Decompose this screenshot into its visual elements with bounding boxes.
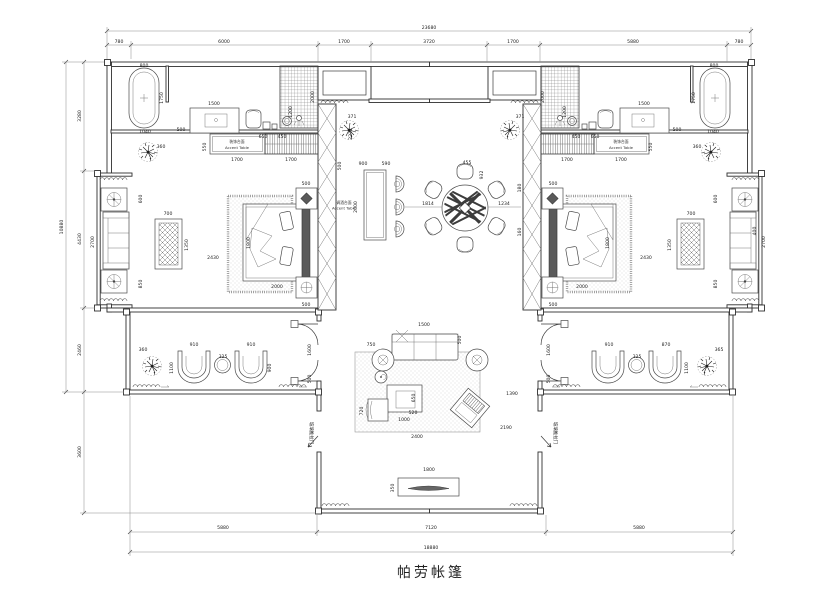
dim-label: 371 [348, 114, 357, 120]
dim-label: 2700 [90, 236, 96, 248]
bed [243, 204, 308, 281]
dim-label: 2000 [540, 91, 546, 103]
dim-label: 932 [479, 171, 485, 180]
side-wing [100, 178, 129, 301]
sofa [392, 334, 458, 360]
dim-label: 1800 [605, 237, 611, 249]
dim-label: 1500 [418, 322, 430, 328]
dim-label: 2700 [761, 236, 767, 248]
dim-label: 1750 [691, 92, 697, 104]
dim-label: 500 [302, 181, 311, 187]
dim-label: 1600 [307, 344, 313, 356]
dim-label: 18880 [424, 545, 439, 551]
dim-label: 360 [139, 347, 148, 353]
bar-stool [394, 176, 404, 192]
dim-label: 590 [382, 161, 391, 167]
dim-label: 23680 [422, 25, 437, 31]
dim-label: 2430 [207, 255, 219, 261]
dim-label: 1350 [667, 239, 673, 251]
dim-label: 360 [693, 144, 702, 150]
dim-label: 6000 [218, 39, 230, 45]
dim-label: 1800 [246, 237, 252, 249]
bar-label-zh: 调酒台面 [336, 200, 351, 205]
dim-label: 1000 [398, 417, 410, 423]
tv-console-group [398, 478, 459, 496]
lounge-chair [178, 351, 210, 383]
door-label: 玻璃推拉门 [308, 422, 315, 444]
dim-label: 1700 [615, 157, 627, 163]
wing-armchair [101, 188, 127, 211]
dim-label: 650 [591, 134, 600, 140]
dim-label: 400 [752, 227, 758, 236]
dim-label: 500 [307, 375, 313, 384]
dim-label: 1200 [562, 106, 568, 118]
dim-label: 1234 [498, 201, 510, 207]
dim-label: 160 [517, 228, 523, 237]
dim-label: 5880 [217, 525, 229, 531]
dim-label: 500 [549, 302, 558, 308]
dim-label: 2000 [310, 91, 316, 103]
dim-label: 910 [190, 342, 199, 348]
dim-label: 520 [409, 410, 418, 416]
dim-label: 180 [517, 184, 523, 193]
dim-label: 870 [662, 342, 671, 348]
headboard [302, 199, 310, 286]
floor-plan-canvas: 调酒台面 Accent Table [0, 0, 837, 592]
dim-label: 700 [687, 211, 696, 217]
dim-label: 910 [605, 342, 614, 348]
dim-label: 2430 [640, 255, 652, 261]
dim-label: 1750 [159, 92, 165, 104]
dim-label: 550 [202, 143, 208, 152]
dim-label: 325 [219, 354, 228, 360]
accent-table-label-zh: 装饰台面 [229, 139, 244, 144]
dim-label: 1600 [546, 344, 552, 356]
dim-label: 1040 [139, 129, 151, 135]
dim-label: 550 [648, 143, 654, 152]
lounge-chair [235, 351, 267, 383]
dim-label: 500 [673, 127, 682, 133]
dim-label: 2000 [353, 201, 359, 213]
dim-label: 1700 [338, 39, 350, 45]
drawing-title: 帕劳帐篷 [397, 565, 465, 581]
slipper-chair [368, 399, 388, 421]
dim-label: 650 [259, 134, 268, 140]
dim-label: 1200 [288, 106, 294, 118]
dim-label: 365 [715, 347, 724, 353]
accent-table-label-zh: 装饰台面 [613, 139, 628, 144]
dim-label: 450 [572, 134, 581, 140]
dim-label: 850 [138, 280, 144, 289]
dim-label: 900 [359, 161, 368, 167]
dim-label: 3600 [77, 446, 83, 458]
dim-label: 5880 [627, 39, 639, 45]
dim-label: 780 [115, 39, 124, 45]
dim-label: 3280 [77, 110, 83, 122]
dim-label: 360 [157, 144, 166, 150]
dim-label: 10880 [59, 220, 65, 235]
dim-label: 7120 [425, 525, 437, 531]
dim-label: 850 [713, 280, 719, 289]
dim-label: 700 [164, 211, 173, 217]
bedroom [139, 143, 318, 299]
wing-armchair [101, 270, 127, 293]
floor-plan-page: 调酒台面 Accent Table [0, 0, 837, 592]
accent-table-label-en: Accent Table [609, 145, 634, 150]
bar-console [364, 170, 386, 240]
dim-label: 600 [138, 195, 144, 204]
accent-table-label-en: Accent Table [225, 145, 250, 150]
dim-label: 450 [278, 134, 287, 140]
dim-label: 780 [735, 39, 744, 45]
dim-label: 1100 [169, 362, 175, 374]
bar-label-en: Accent Table [332, 206, 357, 211]
dimension-labels: 2368078060001700372017005880780588071205… [59, 25, 767, 551]
plant [143, 357, 162, 376]
dim-label: 2000 [576, 284, 588, 290]
dim-label: 325 [633, 354, 642, 360]
plant [139, 143, 158, 162]
dim-label: 2231 [348, 128, 354, 140]
dim-label: 1700 [507, 39, 519, 45]
shower-drain [297, 116, 302, 121]
dim-label: 1040 [707, 129, 719, 135]
dim-label: 2400 [411, 434, 423, 440]
dim-label: 500 [302, 302, 311, 308]
dim-label: 500 [546, 375, 552, 384]
dim-label: 1814 [422, 201, 434, 207]
dim-label: 500 [337, 162, 343, 171]
dim-label: 1700 [285, 157, 297, 163]
dim-label: 371 [516, 114, 525, 120]
dim-label: 2190 [500, 425, 512, 431]
dim-label: 650 [411, 394, 417, 403]
dim-label: 350 [390, 484, 396, 493]
dim-label: 1100 [684, 362, 690, 374]
dim-label: 2000 [271, 284, 283, 290]
dim-label: 900 [267, 364, 273, 373]
dim-label: 800 [710, 63, 719, 69]
dim-label: 1700 [561, 157, 573, 163]
dim-label: 5880 [633, 525, 645, 531]
dim-label: 600 [713, 195, 719, 204]
dim-label: 455 [463, 160, 472, 166]
dim-label: 800 [140, 63, 149, 69]
dim-label: 750 [367, 342, 376, 348]
dim-label: 1350 [184, 239, 190, 251]
bathroom [129, 66, 318, 133]
dim-label: 720 [359, 407, 365, 416]
dining-area: 调酒台面 Accent Table [332, 164, 521, 252]
wing-sofa [103, 212, 129, 269]
dim-label: 4430 [77, 233, 83, 245]
dim-label: 1390 [506, 391, 518, 397]
dim-label: 3720 [423, 39, 435, 45]
dim-label: 1800 [423, 467, 435, 473]
dim-label: 1500 [208, 101, 220, 107]
accent-table-cabinet [210, 134, 265, 154]
dim-label: 1500 [638, 101, 650, 107]
door-label: 玻璃推拉门 [552, 422, 559, 444]
plan-left-half [95, 60, 430, 515]
dim-label: 910 [247, 342, 256, 348]
dim-label: 500 [549, 181, 558, 187]
dim-label: 2460 [77, 344, 83, 356]
dim-label: 500 [457, 336, 463, 345]
dim-label: 500 [177, 127, 186, 133]
bar-stool [394, 199, 404, 215]
dim-label: 1700 [231, 157, 243, 163]
bar-stool [394, 221, 404, 237]
